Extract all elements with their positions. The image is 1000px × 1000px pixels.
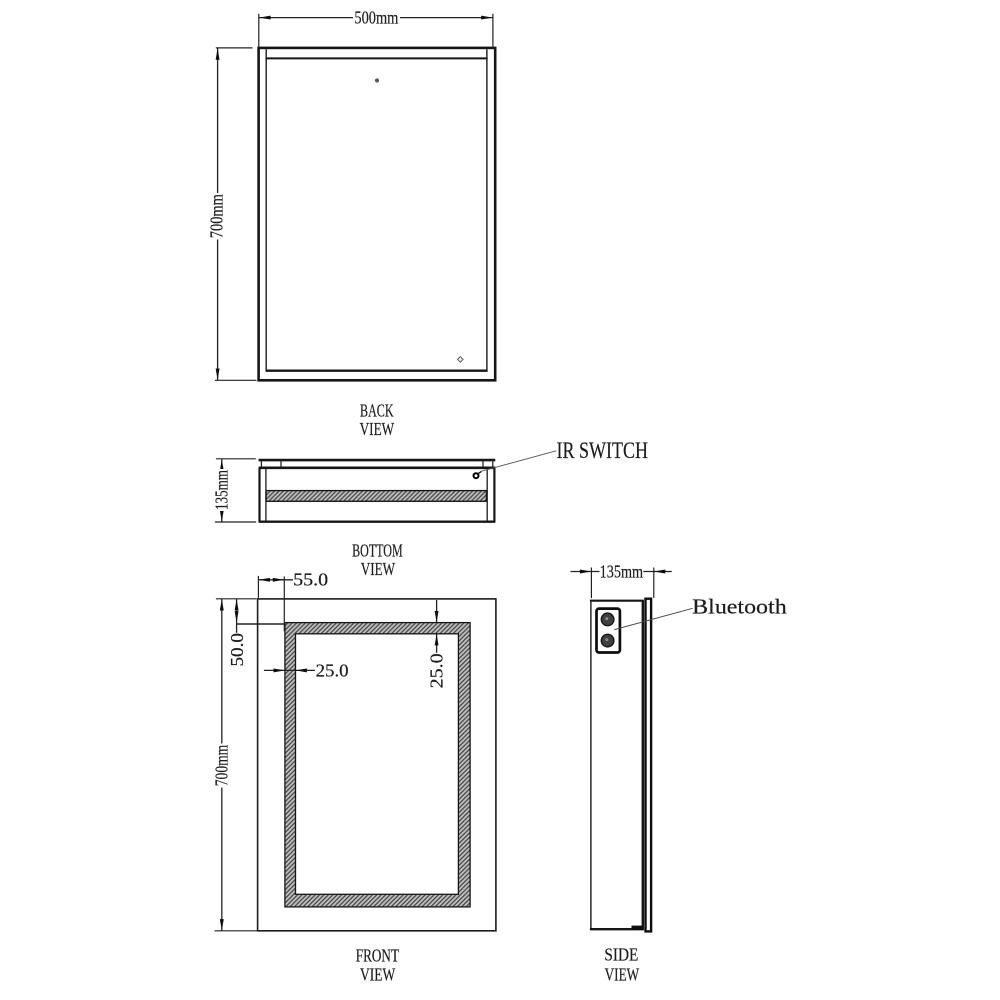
svg-text:IR SWITCH: IR SWITCH (557, 438, 649, 463)
svg-text:700mm: 700mm (212, 745, 232, 787)
svg-text:BACK: BACK (360, 400, 394, 420)
svg-text:VIEW: VIEW (605, 965, 640, 985)
svg-text:700mm: 700mm (206, 194, 226, 238)
svg-text:BOTTOM: BOTTOM (352, 541, 403, 561)
svg-text:VIEW: VIEW (360, 419, 395, 439)
svg-text:135mm: 135mm (600, 562, 644, 582)
svg-text:SIDE: SIDE (604, 945, 638, 965)
svg-text:Bluetooth: Bluetooth (692, 595, 787, 619)
svg-text:VIEW: VIEW (361, 559, 396, 579)
svg-text:55.0: 55.0 (293, 570, 328, 590)
svg-text:VIEW: VIEW (360, 965, 396, 985)
svg-text:25.0: 25.0 (426, 653, 446, 688)
svg-text:FRONT: FRONT (356, 946, 399, 966)
svg-text:500mm: 500mm (354, 8, 398, 28)
svg-text:25.0: 25.0 (316, 660, 349, 680)
svg-text:50.0: 50.0 (227, 633, 247, 667)
svg-text:135mm: 135mm (211, 470, 231, 510)
